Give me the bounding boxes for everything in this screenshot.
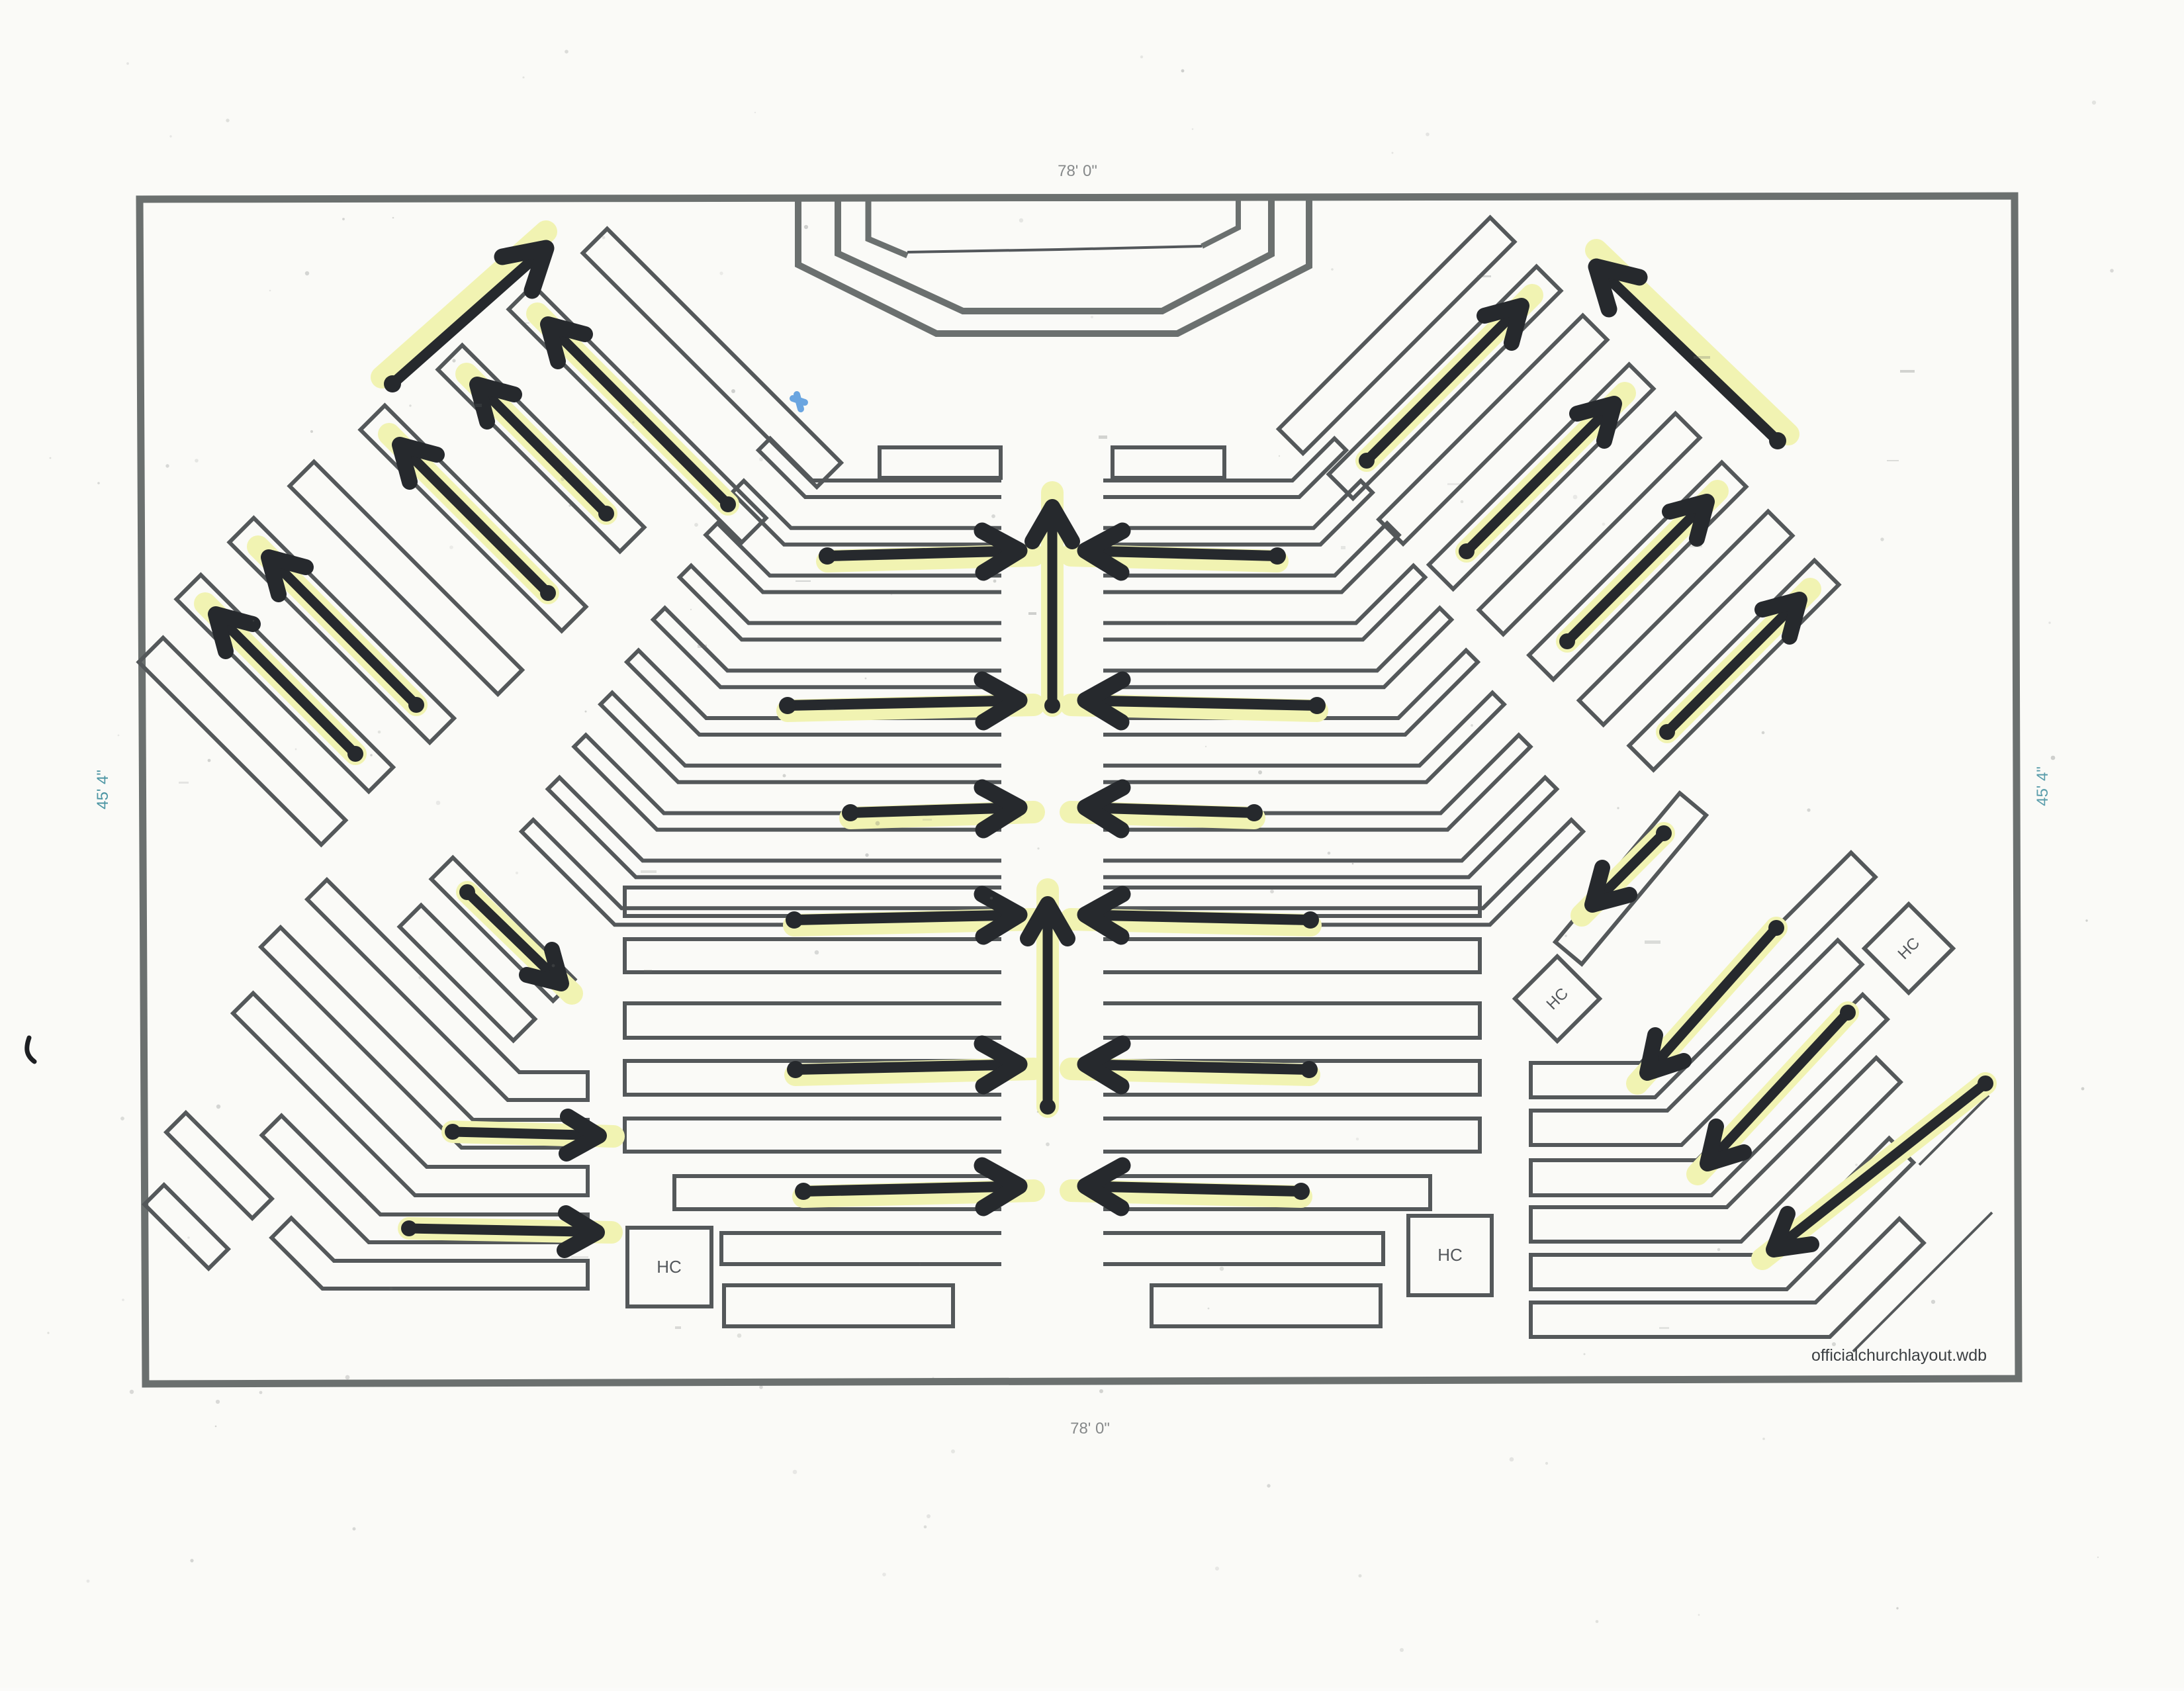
svg-text:78' 0": 78' 0": [1058, 162, 1097, 180]
svg-text:45' 4": 45' 4": [2034, 766, 2052, 806]
svg-text:45' 4": 45' 4": [94, 770, 112, 809]
svg-text:78' 0": 78' 0": [1070, 1420, 1110, 1438]
svg-text:HC: HC: [1437, 1245, 1463, 1265]
svg-text:officialchurchlayout.wdb: officialchurchlayout.wdb: [1811, 1346, 1987, 1365]
svg-text:HC: HC: [657, 1257, 682, 1277]
